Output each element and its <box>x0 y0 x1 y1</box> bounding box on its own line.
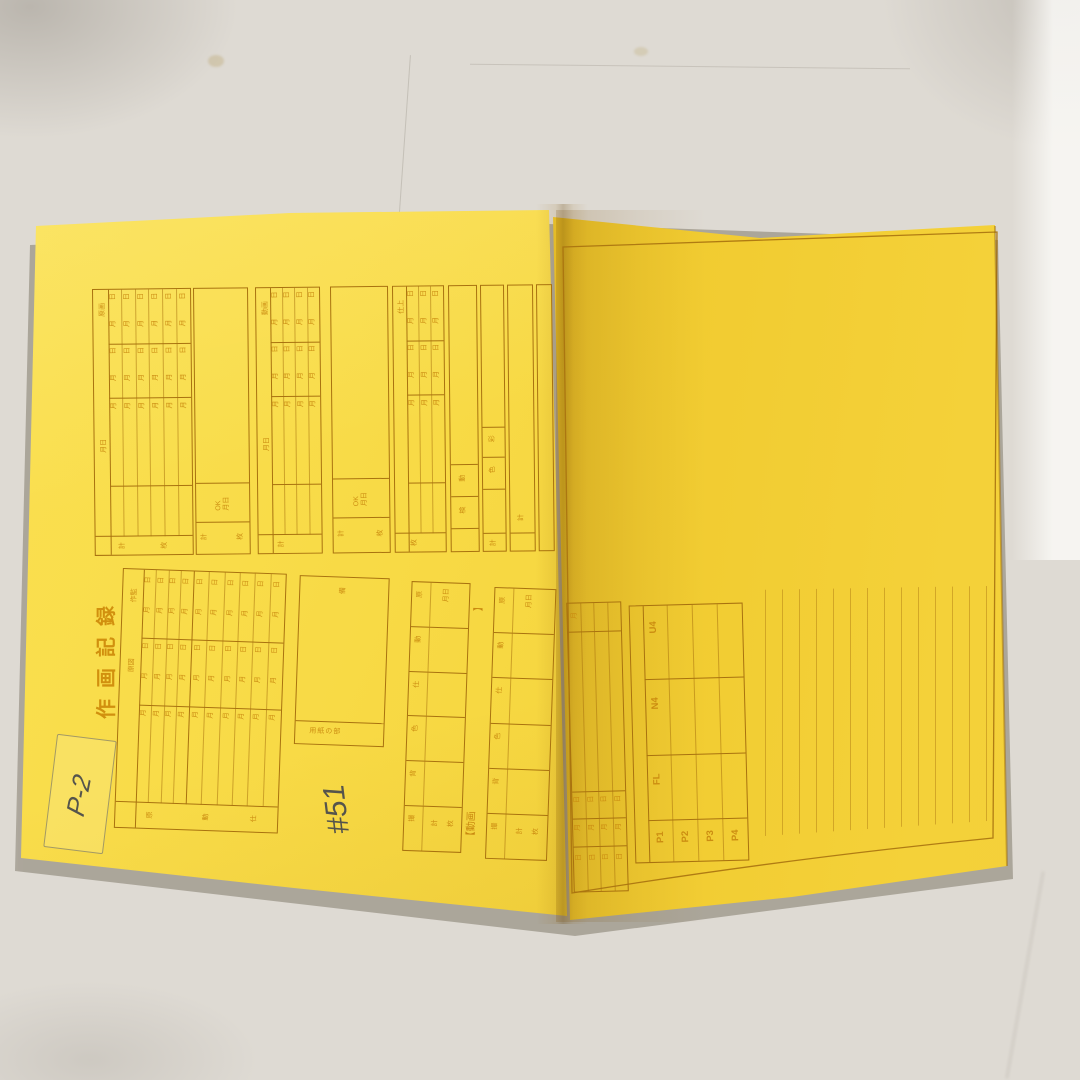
kanji-mark: 日 <box>165 293 173 300</box>
left-page-top-band: 原画 月日 日 月 日 月 月 日 月 日 月 月 <box>88 284 561 555</box>
kanji-mark: 日 <box>124 293 132 300</box>
grid-column <box>717 604 749 861</box>
kanji-mark: 枚 <box>448 820 456 827</box>
kanji-mark: 日 <box>420 290 428 297</box>
row-label: FL <box>652 773 663 785</box>
table-footer: 計 枚 <box>196 521 249 554</box>
row-label: 色 <box>412 725 420 732</box>
record-table-large: 作監 原図 日 月 日 月 月 日 月 日 月 月 <box>114 568 287 834</box>
section-line <box>482 427 504 428</box>
kanji-mark: 日 <box>407 290 415 297</box>
row-label-cell <box>486 814 507 859</box>
kanji-mark: 色 <box>489 466 497 473</box>
section-line <box>484 533 506 534</box>
check-box-column: OK 月日 計 枚 <box>193 287 251 555</box>
footer-label: 枚 <box>377 529 385 536</box>
kanji-mark: 月 <box>138 320 146 327</box>
kanji-mark: 月 <box>270 677 278 684</box>
page-label: P3 <box>706 830 717 842</box>
kanji-mark: 月 <box>138 374 146 381</box>
kanji-mark: 検 <box>460 507 468 514</box>
kanji-mark: 月 <box>166 402 174 409</box>
form-title: 作画記録 <box>90 592 118 722</box>
check-box-column: OK 月日 計 枚 <box>330 286 391 554</box>
footer-label: 計 <box>278 540 286 547</box>
kanji-mark: 月 <box>125 402 133 409</box>
kanji-mark: 月 <box>588 824 596 831</box>
list-row: 原 月日 <box>411 582 469 628</box>
row-header: 月日 <box>443 588 452 602</box>
footer-label: 計 <box>338 530 346 537</box>
kanji-mark: 月 <box>238 713 246 720</box>
row-label: 仕 <box>413 680 421 687</box>
kanji-mark: 月 <box>144 606 152 613</box>
kanji-mark: 日 <box>243 580 251 587</box>
kanji-mark: 月 <box>602 823 610 830</box>
section-line <box>451 496 478 497</box>
kanji-mark: 月 <box>192 711 200 718</box>
ok-date-cell: OK 月日 <box>333 478 389 520</box>
row-header: 月日 <box>526 594 535 608</box>
kanji-mark: 月 <box>273 611 281 618</box>
kanji-mark: 月 <box>111 374 119 381</box>
date-column: 日 月 日 月 月 <box>430 286 445 533</box>
kanji-mark: 月 <box>180 401 188 408</box>
kanji-mark: 日 <box>166 347 174 354</box>
section-line <box>511 532 535 533</box>
stage-list-table: 原 月日 動 仕 色 背 <box>402 581 470 853</box>
kanji-mark: 月 <box>178 711 186 718</box>
kanji-mark: 月 <box>166 374 174 381</box>
row-label: 原 <box>417 591 425 598</box>
kanji-mark: 月 <box>272 401 280 408</box>
kanji-mark: 日 <box>183 578 191 585</box>
kanji-mark: 月 <box>166 710 174 717</box>
kanji-mark: 月 <box>272 319 280 326</box>
kanji-mark: 日 <box>433 290 441 297</box>
kanji-mark: 日 <box>574 796 582 803</box>
kanji-mark: 月 <box>227 609 235 616</box>
kanji-mark: 月 <box>153 710 161 717</box>
kanji-mark: 月 <box>575 824 583 831</box>
narrow-column <box>536 284 555 551</box>
kanji-mark: 月 <box>167 673 175 680</box>
row-label-cell <box>403 806 424 850</box>
table-footer: 計 枚 <box>333 517 389 553</box>
row-label: 撮 <box>491 822 499 829</box>
kanji-mark: 日 <box>603 853 611 860</box>
kanji-mark: 枚 <box>532 828 540 835</box>
section-line <box>483 457 505 458</box>
kanji-mark: 日 <box>210 645 218 652</box>
row-label-cell <box>492 633 513 678</box>
kanji-mark: 月 <box>125 374 133 381</box>
bracket-close-text: 】 <box>469 601 484 612</box>
list-row: 仕 <box>491 677 553 724</box>
kanji-mark: 日 <box>212 579 220 586</box>
date-columns: 日 月 日 月 月 日 月 日 月 月 日 月 日 <box>108 289 193 537</box>
kanji-mark: 日 <box>433 344 441 351</box>
table-footer: 枚 <box>396 532 446 552</box>
footer-label: 計 <box>201 533 209 540</box>
kanji-mark: 日 <box>258 580 266 587</box>
kanji-mark: 月 <box>154 673 162 680</box>
memo-strip-label: 用紙の部 <box>309 728 341 737</box>
kanji-mark: 日 <box>284 345 292 352</box>
row-label-cell <box>489 723 510 768</box>
kanji-mark: 月 <box>408 317 416 324</box>
kanji-mark: 月 <box>111 402 119 409</box>
list-row: 撮 計 枚 <box>486 813 548 860</box>
kanji-mark: 月 <box>285 372 293 379</box>
page-label: P1 <box>656 831 667 843</box>
kanji-mark: 月 <box>140 709 148 716</box>
kanji-mark: 月 <box>285 400 293 407</box>
footer-label: 枚 <box>161 542 169 549</box>
kanji-mark: 日 <box>110 293 118 300</box>
kanji-mark: 日 <box>195 644 203 651</box>
kanji-mark: 月 <box>254 713 262 720</box>
paper-edge-line <box>995 226 1007 866</box>
footer-label: 枚 <box>411 539 419 546</box>
kanji-mark: 月 <box>166 320 174 327</box>
kanji-mark: 月 <box>615 823 623 830</box>
kanji-mark: 月 <box>408 399 416 406</box>
grid-columns <box>643 604 749 863</box>
kanji-mark: 日 <box>271 647 279 654</box>
photo-scene: 原画 月日 日 月 日 月 月 日 月 日 月 月 <box>0 0 1080 1080</box>
narrow-column: 計 <box>507 284 536 551</box>
kanji-mark: 彩 <box>489 435 497 442</box>
footer-label: 動 <box>203 813 211 820</box>
kanji-mark: 月 <box>420 317 428 324</box>
kanji-mark: 月 <box>223 712 231 719</box>
kanji-mark: 月 <box>421 399 429 406</box>
row-label: 色 <box>495 732 503 739</box>
page-grid-table: U4 N4 FL P1 P2 P3 P4 <box>629 603 750 864</box>
kanji-mark: 日 <box>272 346 280 353</box>
kanji-mark: 日 <box>576 854 584 861</box>
handwritten-page-label: P-2 <box>60 771 98 820</box>
footer-label: 仕 <box>251 815 259 822</box>
section-line <box>451 464 478 465</box>
kanji-mark: 月 <box>421 371 429 378</box>
row-label-cell <box>410 627 431 671</box>
section-line <box>296 720 384 724</box>
kanji-mark: 月 <box>141 672 149 679</box>
kanji-mark: 計 <box>490 539 498 546</box>
ruled-lines-area <box>765 586 987 836</box>
column-label: 月日 <box>264 437 272 451</box>
narrow-column: 彩 色 計 <box>480 285 507 552</box>
kanji-mark: 日 <box>421 344 429 351</box>
kanji-mark: 日 <box>309 345 317 352</box>
date-columns: 日 月 日 月 月 日 月 日 月 月 日 月 日 <box>187 571 286 807</box>
list-row: 背 <box>488 768 550 815</box>
kanji-mark: 日 <box>241 646 249 653</box>
kanji-mark: 日 <box>614 795 622 802</box>
kanji-mark: 月 <box>179 319 187 326</box>
date-columns: 日 月 日 月 月 日 月 日 月 月 日 月 日 <box>406 286 446 533</box>
kanji-mark: 日 <box>225 645 233 652</box>
kanji-mark: 日 <box>616 853 624 860</box>
row-label-cell <box>488 769 509 814</box>
record-table: 動画 月日 日 月 日 月 月 日 月 日 月 月 <box>255 287 323 555</box>
kanji-mark: 日 <box>408 344 416 351</box>
kanji-mark: 月 <box>434 399 442 406</box>
table-header-mark: 月 <box>571 612 579 619</box>
kanji-mark: 月 <box>208 712 216 719</box>
row-label: 背 <box>493 777 501 784</box>
row-label: 撮 <box>409 815 417 822</box>
row-label: 動 <box>415 636 423 643</box>
kanji-mark: 月 <box>180 373 188 380</box>
kanji-mark: 日 <box>110 347 118 354</box>
kanji-mark: 月 <box>194 674 202 681</box>
kanji-mark: 月 <box>156 607 164 614</box>
date-column: 日 月 日 月 月 <box>306 288 321 535</box>
kanji-mark: 備 <box>340 587 348 594</box>
kanji-mark: 月 <box>297 400 305 407</box>
page-label: P4 <box>731 829 742 841</box>
kanji-mark: 月 <box>110 320 118 327</box>
list-row: 動 <box>492 632 554 679</box>
kanji-mark: 日 <box>274 581 282 588</box>
list-row: 色 <box>489 722 551 769</box>
column-label: 原図 <box>128 658 137 672</box>
column-label: 原画 <box>99 303 107 317</box>
kanji-mark: 月 <box>153 402 161 409</box>
date-column: 日 月 日 月 月 <box>176 289 192 536</box>
ok-date-text: OK 月日 <box>353 492 369 506</box>
kanji-mark: 月 <box>272 373 280 380</box>
kanji-mark: 月 <box>124 320 132 327</box>
kanji-mark: 月 <box>269 714 277 721</box>
kanji-mark: 日 <box>309 291 317 298</box>
kanji-mark: 計 <box>432 820 440 827</box>
kanji-mark: 月 <box>196 608 204 615</box>
kanji-mark: 月 <box>310 400 318 407</box>
kanji-mark: 月 <box>180 674 188 681</box>
list-row: 動 <box>410 626 469 673</box>
date-columns: 日 月 日 月 月 日 月 日 月 月 日 月 日 <box>136 570 194 805</box>
row-label-cell <box>491 678 512 723</box>
kanji-mark: 月 <box>297 318 305 325</box>
date-columns: 日 月 日 月 月 日 月 日 月 月 日 月 日 <box>270 288 322 535</box>
kanji-mark: 日 <box>145 576 153 583</box>
list-row: 原 月日 <box>494 588 556 634</box>
row-label: U4 <box>649 621 660 633</box>
kanji-mark: 月 <box>182 608 190 615</box>
footer-label: 原 <box>147 811 155 818</box>
list-row: 色 <box>406 715 465 762</box>
column-label: 月日 <box>101 439 109 453</box>
kanji-mark: 日 <box>155 643 163 650</box>
table-footer: 原 動 仕 <box>115 801 278 833</box>
kanji-mark: 月 <box>310 372 318 379</box>
kanji-mark: 日 <box>152 347 160 354</box>
section-line <box>452 528 479 529</box>
kanji-mark: 日 <box>284 291 292 298</box>
memo-box: 備 用紙の部 <box>294 575 390 747</box>
kanji-mark: 日 <box>124 347 132 354</box>
kanji-mark: 日 <box>589 854 597 861</box>
kanji-mark: 月 <box>209 675 217 682</box>
row-label: 仕 <box>496 687 504 694</box>
stage-list-table: 原 月日 動 仕 色 背 <box>485 587 556 861</box>
kanji-mark: 日 <box>179 292 187 299</box>
kanji-mark: 月 <box>242 610 250 617</box>
list-row: 仕 <box>408 671 467 718</box>
kanji-mark: 月 <box>152 320 160 327</box>
kanji-mark: 日 <box>157 577 165 584</box>
row-label: 動 <box>498 642 506 649</box>
row-label-cell <box>411 582 432 626</box>
record-table: 仕上 日 月 日 月 月 日 月 日 月 月 <box>392 285 447 553</box>
narrow-column: 動 検 <box>448 285 480 552</box>
kanji-mark: 日 <box>138 293 146 300</box>
kanji-mark: 日 <box>297 345 305 352</box>
kanji-mark: 日 <box>271 292 279 299</box>
kanji-mark: 月 <box>152 374 160 381</box>
kanji-mark: 月 <box>408 371 416 378</box>
section-line <box>483 489 505 490</box>
kanji-mark: 日 <box>142 642 150 649</box>
footer-label: 枚 <box>237 533 245 540</box>
kanji-mark: 日 <box>151 293 159 300</box>
row-label: 背 <box>410 770 418 777</box>
kanji-mark: 月 <box>257 610 265 617</box>
column-label: 動画 <box>262 301 270 315</box>
ok-date-text: OK 月日 <box>215 497 231 511</box>
ok-date-cell: OK 月日 <box>196 482 249 524</box>
kanji-mark: 日 <box>601 795 609 802</box>
kanji-mark: 月 <box>139 402 147 409</box>
list-row: 背 <box>405 760 464 807</box>
kanji-mark: 日 <box>256 646 264 653</box>
cell-count-table: 日 月 日 日 月 日 日 月 日 日 月 日 月 <box>566 601 629 892</box>
kanji-mark: 月 <box>255 676 263 683</box>
column-label: 作監 <box>131 588 140 602</box>
list-row: 撮 計 枚 <box>403 805 462 852</box>
kanji-mark: 月 <box>169 607 177 614</box>
table-footer: 計 枚 <box>96 535 193 555</box>
kanji-mark: 月 <box>211 609 219 616</box>
columns: 日 月 日 日 月 日 日 月 日 日 月 日 <box>567 602 628 891</box>
kanji-mark: 日 <box>197 578 205 585</box>
kanji-mark: 月 <box>309 318 317 325</box>
footer-label: 計 <box>119 542 127 549</box>
row-label-cell <box>408 672 429 716</box>
handwritten-cut-number-wrap: #51 <box>298 768 368 848</box>
kanji-mark: 日 <box>168 643 176 650</box>
kanji-mark: 月 <box>284 318 292 325</box>
kanji-mark: 月 <box>297 372 305 379</box>
kanji-mark: 日 <box>138 347 146 354</box>
kanji-mark: 日 <box>181 644 189 651</box>
kanji-mark: 月 <box>433 317 441 324</box>
bracket-open-text: 【動画 <box>461 811 477 842</box>
page-label: P2 <box>681 831 692 843</box>
kanji-mark: 計 <box>518 514 526 521</box>
kanji-mark: 日 <box>588 796 596 803</box>
kanji-mark: 日 <box>296 291 304 298</box>
kanji-mark: 日 <box>228 579 236 586</box>
kanji-mark: 計 <box>516 827 524 834</box>
kanji-mark: 日 <box>180 346 188 353</box>
row-label-cell <box>494 588 515 633</box>
table-footer: 計 <box>259 534 322 554</box>
record-table: 原画 月日 日 月 日 月 月 日 月 日 月 月 <box>92 288 194 556</box>
kanji-mark: 月 <box>240 676 248 683</box>
kanji-mark: 月 <box>434 371 442 378</box>
handwritten-cut-number: #51 <box>317 782 357 836</box>
column-label: 仕上 <box>398 300 406 314</box>
row-label-cell <box>405 761 426 805</box>
row-label: N4 <box>651 697 662 709</box>
row-label: 原 <box>499 597 507 604</box>
printed-content: 原画 月日 日 月 日 月 月 日 月 日 月 月 <box>0 0 1080 1080</box>
kanji-mark: 月 <box>224 675 232 682</box>
row-label-cell <box>406 716 427 760</box>
kanji-mark: 日 <box>170 577 178 584</box>
kanji-mark: 動 <box>459 475 467 482</box>
